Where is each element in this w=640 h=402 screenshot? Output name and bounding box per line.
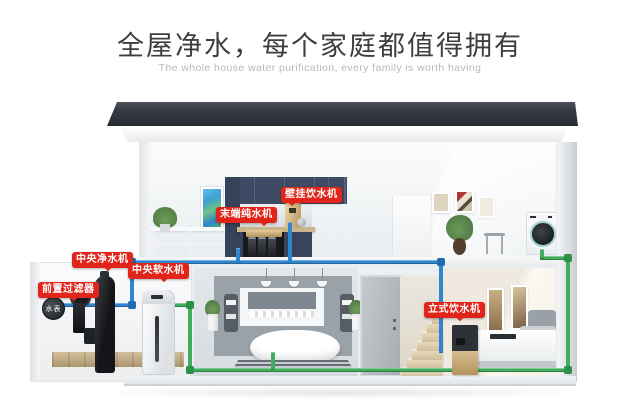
- pipe-joint: [128, 301, 136, 309]
- wall-picture: [432, 192, 450, 213]
- stool-leg: [501, 236, 503, 254]
- green-pipe-right-riser: [566, 256, 570, 372]
- pipe-joint: [564, 366, 572, 374]
- pipe-joint: [437, 258, 445, 266]
- plant-pot: [208, 314, 218, 331]
- wall-picture: [511, 285, 528, 330]
- potted-plant: [153, 207, 177, 228]
- label-wall-dispenser: 壁挂饮水机: [281, 187, 342, 203]
- page-title: 全屋净水，每个家庭都值得拥有: [0, 24, 640, 63]
- wall-picture: [455, 190, 474, 213]
- filter-cartridge: [248, 237, 256, 259]
- promo-page: 全屋净水，每个家庭都值得拥有 The whole house water pur…: [0, 0, 640, 402]
- central-softener-slot: [155, 316, 159, 362]
- pipe-joint: [186, 301, 194, 309]
- filter-cartridge: [258, 237, 266, 259]
- page-subtitle: The whole house water purification, ever…: [0, 62, 640, 74]
- plant-vase: [453, 238, 466, 255]
- pipe-joint: [186, 366, 194, 374]
- standing-dispenser-device: [452, 325, 478, 375]
- green-pipe-washer-stub: [540, 249, 544, 259]
- kettle: [297, 218, 306, 227]
- wall-picture: [478, 196, 495, 218]
- stool-leg: [486, 236, 488, 254]
- pendant-light: [322, 268, 323, 282]
- white-cabinet: [392, 196, 431, 258]
- label-terminal-purifier: 末端纯水机: [216, 207, 277, 223]
- washing-machine-door: [530, 221, 556, 247]
- laptop-on-bed: [490, 334, 516, 339]
- pipe-joint: [564, 254, 572, 262]
- filter-cartridge: [268, 237, 276, 259]
- central-softener-head: [142, 290, 173, 304]
- utility-left-wall: [30, 262, 40, 380]
- wall-picture: [487, 288, 504, 332]
- green-pipe-tub-stub: [271, 352, 275, 370]
- table-shelf: [154, 243, 224, 245]
- label-standing-dispenser: 立式饮水机: [424, 302, 485, 318]
- bathroom-niche: [240, 288, 324, 326]
- pendant-light: [294, 268, 295, 282]
- terminal-purifier-device: [246, 230, 282, 237]
- bathtub: [250, 330, 340, 365]
- label-pre-filter: 前置过滤器: [38, 282, 99, 298]
- green-pipe-drop: [188, 303, 192, 371]
- house-base: [124, 376, 576, 386]
- interior-door: [360, 275, 402, 377]
- label-central-purifier: 中央净水机: [72, 252, 133, 268]
- house-roof: [107, 102, 578, 126]
- washing-machine-panel: [528, 215, 554, 219]
- pendant-light: [266, 268, 267, 282]
- label-central-softener: 中央软水机: [128, 263, 189, 279]
- water-meter-device: 水表: [42, 297, 65, 320]
- towel-rack: [224, 294, 238, 332]
- blue-pipe-sink-drop: [236, 248, 240, 264]
- green-pipe-floor-run: [188, 368, 570, 372]
- roof-fascia: [119, 126, 568, 142]
- blue-pipe-dispenser-drop: [288, 222, 292, 264]
- upper-left-wall: [139, 142, 151, 258]
- ground-shadow: [90, 386, 590, 399]
